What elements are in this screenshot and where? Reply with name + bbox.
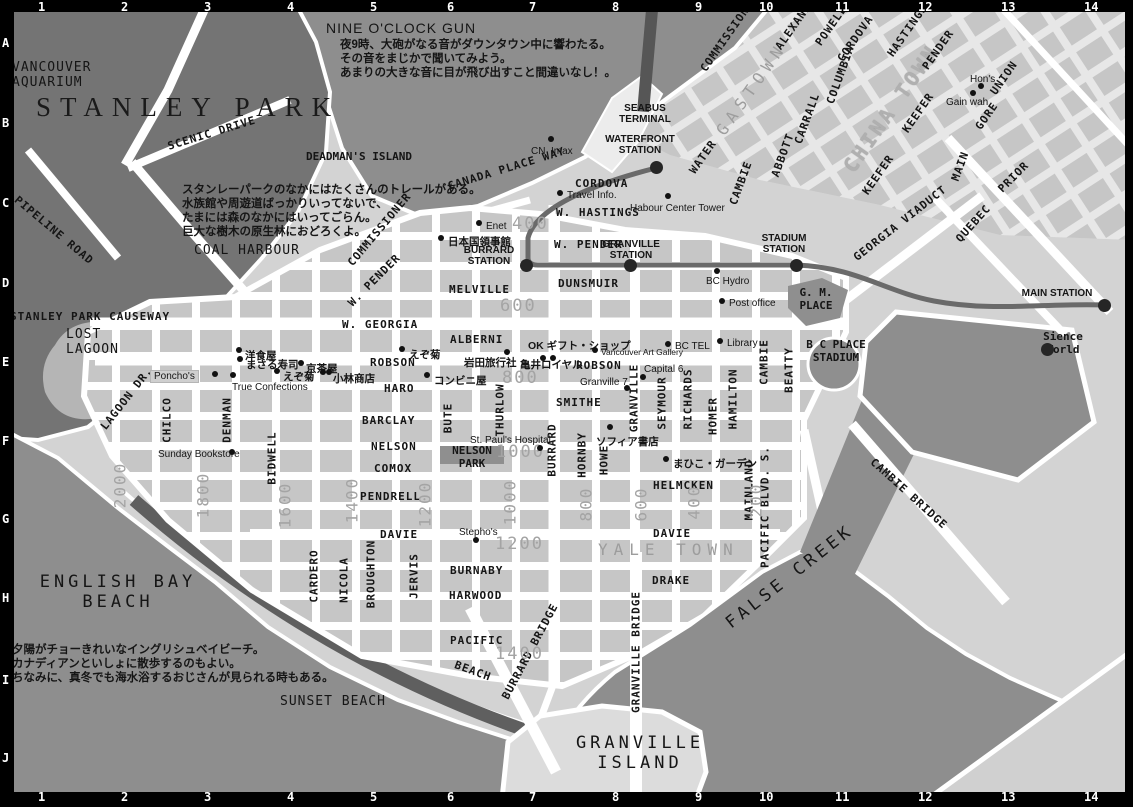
street-label-nicola: NICOLA (338, 557, 351, 603)
block-number-600: 600 (632, 487, 651, 522)
poi-dot (212, 371, 218, 377)
area-label-english-bay-beach: ENGLISH BAY BEACH (40, 572, 197, 612)
poi-dot (717, 338, 723, 344)
street-label-pipeline-road: PIPELINE ROAD (12, 194, 96, 268)
street-label-comox: COMOX (374, 462, 412, 475)
area-label-yale-town: YALE TOWN (598, 540, 739, 559)
grid-col-bottom-14: 14 (1084, 790, 1098, 804)
street-label-cambie: CAMBIE (727, 159, 755, 206)
street-label-pendrell: PENDRELL (360, 490, 421, 503)
poi-label-enet: Enet (486, 221, 507, 232)
street-label-w-hastings: W. HASTINGS (556, 206, 640, 219)
station-label-stadium-station: STADIUM STATION (762, 233, 807, 255)
grid-col-top-14: 14 (1084, 0, 1098, 14)
poi-label-library: Library (727, 338, 758, 349)
poi-label: ソフィア書店 (596, 434, 659, 449)
poi-label: まさる寿司 (246, 357, 299, 372)
poi-dot (663, 456, 669, 462)
street-label-nelson: NELSON (371, 440, 417, 453)
grid-col-top-6: 6 (447, 0, 454, 14)
street-label-homer: HOMER (707, 397, 720, 435)
station-label-granville-station: GRANVILLE STATION (602, 239, 660, 261)
grid-row-d: D (2, 276, 9, 290)
station-dot (790, 259, 803, 272)
grid-bar-bottom (0, 792, 1133, 807)
street-label-granville: GRANVILLE (628, 364, 641, 433)
poi-dot (978, 83, 984, 89)
poi-label-true-confections: True Confections (232, 382, 308, 393)
grid-col-bottom-1: 1 (38, 790, 45, 804)
area-label-g-m-place: G. M. PLACE (799, 286, 832, 312)
street-label-howe: HOWE (598, 445, 611, 476)
grid-col-bottom-13: 13 (1001, 790, 1015, 804)
poi-dot (504, 349, 510, 355)
grid-row-j: J (2, 751, 9, 765)
street-label-lagoon-dr: LAGOON DR. (98, 364, 155, 432)
street-label-dunsmuir: DUNSMUIR (558, 277, 619, 290)
station-label-main-station: MAIN STATION (1022, 288, 1093, 299)
poi-dot (424, 372, 430, 378)
grid-col-bottom-9: 9 (695, 790, 702, 804)
poi-dot (438, 235, 444, 241)
poi-dot (607, 424, 613, 430)
street-label-cambie-bridge: CAMBIE BRIDGE (868, 456, 950, 532)
station-label-waterfront-station: WATERFRONT STATION (605, 134, 675, 156)
poi-label: えぞ菊 (409, 347, 441, 362)
block-number-1200: 1200 (495, 534, 544, 554)
grid-col-top-5: 5 (370, 0, 377, 14)
block-number-400: 400 (685, 485, 704, 520)
label-layer: VANCOUVER AQUARIUMSTANLEY PARKDEADMAN'S … (0, 0, 1133, 807)
street-label-burrard: BURRARD (546, 423, 559, 476)
grid-row-g: G (2, 512, 9, 526)
area-label-deadman-s-island: DEADMAN'S ISLAND (306, 150, 412, 163)
area-label-gastown: GASTOWN (712, 38, 790, 139)
street-label-denman: DENMAN (221, 397, 234, 443)
street-label-chilco: CHILCO (161, 397, 174, 443)
poi-dot (665, 193, 671, 199)
street-label-smithe: SMITHE (556, 396, 602, 409)
poi-label-poncho-s: Poncho's (150, 370, 199, 383)
grid-row-h: H (2, 591, 9, 605)
street-label-davie: DAVIE (380, 528, 418, 541)
street-label-prior: PRIOR (995, 159, 1031, 195)
poi-dot (298, 360, 304, 366)
grid-col-bottom-10: 10 (759, 790, 773, 804)
street-label-bute: BUTE (442, 403, 455, 434)
poi-dot (624, 385, 630, 391)
area-label-sunset-beach: SUNSET BEACH (280, 694, 386, 709)
station-label-burrard-station: BURRARD STATION (464, 245, 515, 267)
grid-col-bottom-8: 8 (612, 790, 619, 804)
poi-label-ok: OK ギフト・ショップ (528, 338, 631, 353)
poi-dot (719, 298, 725, 304)
street-label-seymour: SEYMOUR (656, 376, 669, 429)
grid-col-bottom-4: 4 (287, 790, 294, 804)
poi-label-sunday-bookstore: Sunday Bookstore (158, 449, 240, 460)
station-dot (520, 259, 533, 272)
area-label-vancouver-aquarium: VANCOUVER AQUARIUM (12, 60, 91, 90)
area-label-nine-o-clock-gun: NINE O'CLOCK GUN (326, 20, 476, 36)
poi-dot (970, 90, 976, 96)
poi-dot (237, 356, 243, 362)
street-label-harwood: HARWOOD (449, 589, 502, 602)
street-label-jervis: JERVIS (408, 553, 421, 599)
street-label-thurlow: THURLOW (494, 383, 507, 436)
grid-col-top-4: 4 (287, 0, 294, 14)
street-label-stanley-park-causeway: STANLEY PARK CAUSEWAY (10, 310, 170, 323)
block-number-2000: 2000 (111, 462, 130, 509)
poi-label-bc-hydro: BC Hydro (706, 276, 749, 287)
block-number-600: 600 (500, 296, 537, 316)
area-label-stanley-park: STANLEY PARK (36, 92, 340, 123)
block-number-1400: 1400 (343, 477, 362, 524)
grid-bar-right (1125, 0, 1133, 807)
grid-row-e: E (2, 355, 9, 369)
street-label-main: MAIN (949, 150, 972, 183)
area-label-nelson-park: NELSON PARK (452, 444, 492, 470)
grid-col-top-7: 7 (529, 0, 536, 14)
poi-dot (230, 372, 236, 378)
street-label-granville-bridge: GRANVILLE BRIDGE (630, 591, 643, 713)
block-number-200: 200 (747, 483, 766, 518)
grid-col-top-8: 8 (612, 0, 619, 14)
poi-label-gain-wah: Gain wah (946, 97, 988, 108)
poi-dot (714, 268, 720, 274)
station-dot (1098, 299, 1111, 312)
grid-col-bottom-7: 7 (529, 790, 536, 804)
poi-label: まひこ・ガーデン (673, 456, 757, 471)
street-label-w-georgia: W. GEORGIA (342, 318, 418, 331)
grid-col-top-2: 2 (121, 0, 128, 14)
vancouver-tourist-map: VANCOUVER AQUARIUMSTANLEY PARKDEADMAN'S … (0, 0, 1133, 807)
street-label-hornby: HORNBY (576, 432, 589, 478)
poi-dot (229, 449, 235, 455)
street-label-davie: DAVIE (653, 527, 691, 540)
area-label-false-creek: FALSE CREEK (722, 521, 858, 633)
poi-label-habour-center-tower: Habour Center Tower (630, 203, 725, 214)
poi-dot (326, 369, 332, 375)
grid-col-bottom-12: 12 (918, 790, 932, 804)
block-number-1400: 1400 (495, 644, 544, 664)
poi-label-capital-6: Capital 6 (644, 364, 683, 375)
street-label-abbott: ABBOTT (769, 131, 797, 178)
block-number-1000: 1000 (501, 479, 520, 526)
poi-label: 小林商店 (333, 371, 375, 386)
poi-label-granville-7: Granville 7 (580, 377, 628, 388)
street-label-richards: RICHARDS (682, 369, 695, 430)
street-label-hamilton: HAMILTON (727, 369, 740, 430)
poi-dot (236, 347, 242, 353)
street-label-beach: BEACH (453, 658, 493, 683)
grid-row-c: C (2, 196, 9, 210)
street-label-drake: DRAKE (652, 574, 690, 587)
block-number-400: 400 (512, 214, 549, 234)
poi-dot (557, 190, 563, 196)
grid-row-b: B (2, 116, 9, 130)
poi-dot (640, 374, 646, 380)
grid-bar-top (0, 0, 1133, 12)
street-label-cardero: CARDERO (308, 549, 321, 602)
street-label-water: WATER (687, 138, 720, 177)
street-label-alberni: ALBERNI (450, 333, 503, 346)
grid-col-top-12: 12 (918, 0, 932, 14)
street-label-burnaby: BURNABY (450, 564, 503, 577)
street-label-cordova: CORDOVA (575, 177, 628, 190)
poi-label: 岩田旅行社 (464, 355, 517, 370)
grid-col-top-1: 1 (38, 0, 45, 14)
grid-row-a: A (2, 36, 9, 50)
grid-col-bottom-2: 2 (121, 790, 128, 804)
grid-col-top-9: 9 (695, 0, 702, 14)
block-number-800: 800 (577, 487, 596, 522)
station-dot (650, 161, 663, 174)
street-label-columbia: COLUMBIA (824, 44, 857, 106)
station-dot (1041, 343, 1054, 356)
area-label-coal-harbour: COAL HARBOUR (194, 243, 300, 258)
poi-dot (473, 537, 479, 543)
street-label-bidwell: BIDWELL (266, 431, 279, 484)
street-label-georgia-viaduct: GEORGIA VIADUCT (851, 183, 949, 264)
note-line: 巨大な樹木の原生林におどろくよ。 (182, 223, 366, 239)
poi-label-travel-info: Travel Info. (567, 190, 617, 201)
street-label-barclay: BARCLAY (362, 414, 415, 427)
grid-row-f: F (2, 434, 9, 448)
grid-col-bottom-3: 3 (204, 790, 211, 804)
area-label-lost-lagoon: LOST LAGOON (66, 327, 119, 357)
street-label-broughton: BROUGHTON (365, 540, 378, 609)
poi-dot (592, 347, 598, 353)
street-label-cambie: CAMBIE (758, 339, 771, 385)
grid-col-bottom-11: 11 (835, 790, 849, 804)
poi-label-cn-imax: CN Imax (531, 146, 573, 157)
poi-dot (540, 355, 546, 361)
grid-col-top-11: 11 (835, 0, 849, 14)
poi-dot (399, 346, 405, 352)
grid-row-i: I (2, 673, 9, 687)
grid-col-bottom-6: 6 (447, 790, 454, 804)
area-label-granville-island: GRANVILLE ISLAND (576, 733, 704, 773)
note-line: あまりの大きな音に目が飛び出すこと間違いなし！。 (340, 64, 616, 80)
note-line: ちなみに、真冬でも海水浴するおじさんが見られる時もある。 (12, 669, 334, 685)
poi-dot (274, 368, 280, 374)
poi-label-post-office: Post office (729, 298, 776, 309)
street-label-carrall: CARRALL (792, 91, 822, 146)
block-number-1600: 1600 (276, 482, 295, 529)
poi-dot (537, 445, 543, 451)
block-number-1800: 1800 (194, 472, 213, 519)
area-label-b-c-place-stadium: B C PLACE STADIUM (806, 338, 866, 364)
street-label-helmcken: HELMCKEN (653, 479, 714, 492)
grid-col-top-10: 10 (759, 0, 773, 14)
street-label-quebec: QUEBEC (953, 202, 993, 245)
street-label-beatty: BEATTY (783, 347, 796, 393)
station-dot (624, 259, 637, 272)
block-number-1200: 1200 (416, 481, 435, 528)
street-label-melville: MELVILLE (449, 283, 510, 296)
grid-col-top-3: 3 (204, 0, 211, 14)
poi-label: コンビニ屋 (434, 373, 487, 388)
grid-col-top-13: 13 (1001, 0, 1015, 14)
grid-col-bottom-5: 5 (370, 790, 377, 804)
poi-label-stepho-s: Stepho's (459, 527, 498, 538)
poi-dot (548, 136, 554, 142)
poi-dot (476, 220, 482, 226)
poi-dot (665, 341, 671, 347)
poi-dot (550, 355, 556, 361)
station-label-seabus-terminal: SEABUS TERMINAL (619, 103, 671, 125)
street-label-haro: HARO (384, 382, 415, 395)
